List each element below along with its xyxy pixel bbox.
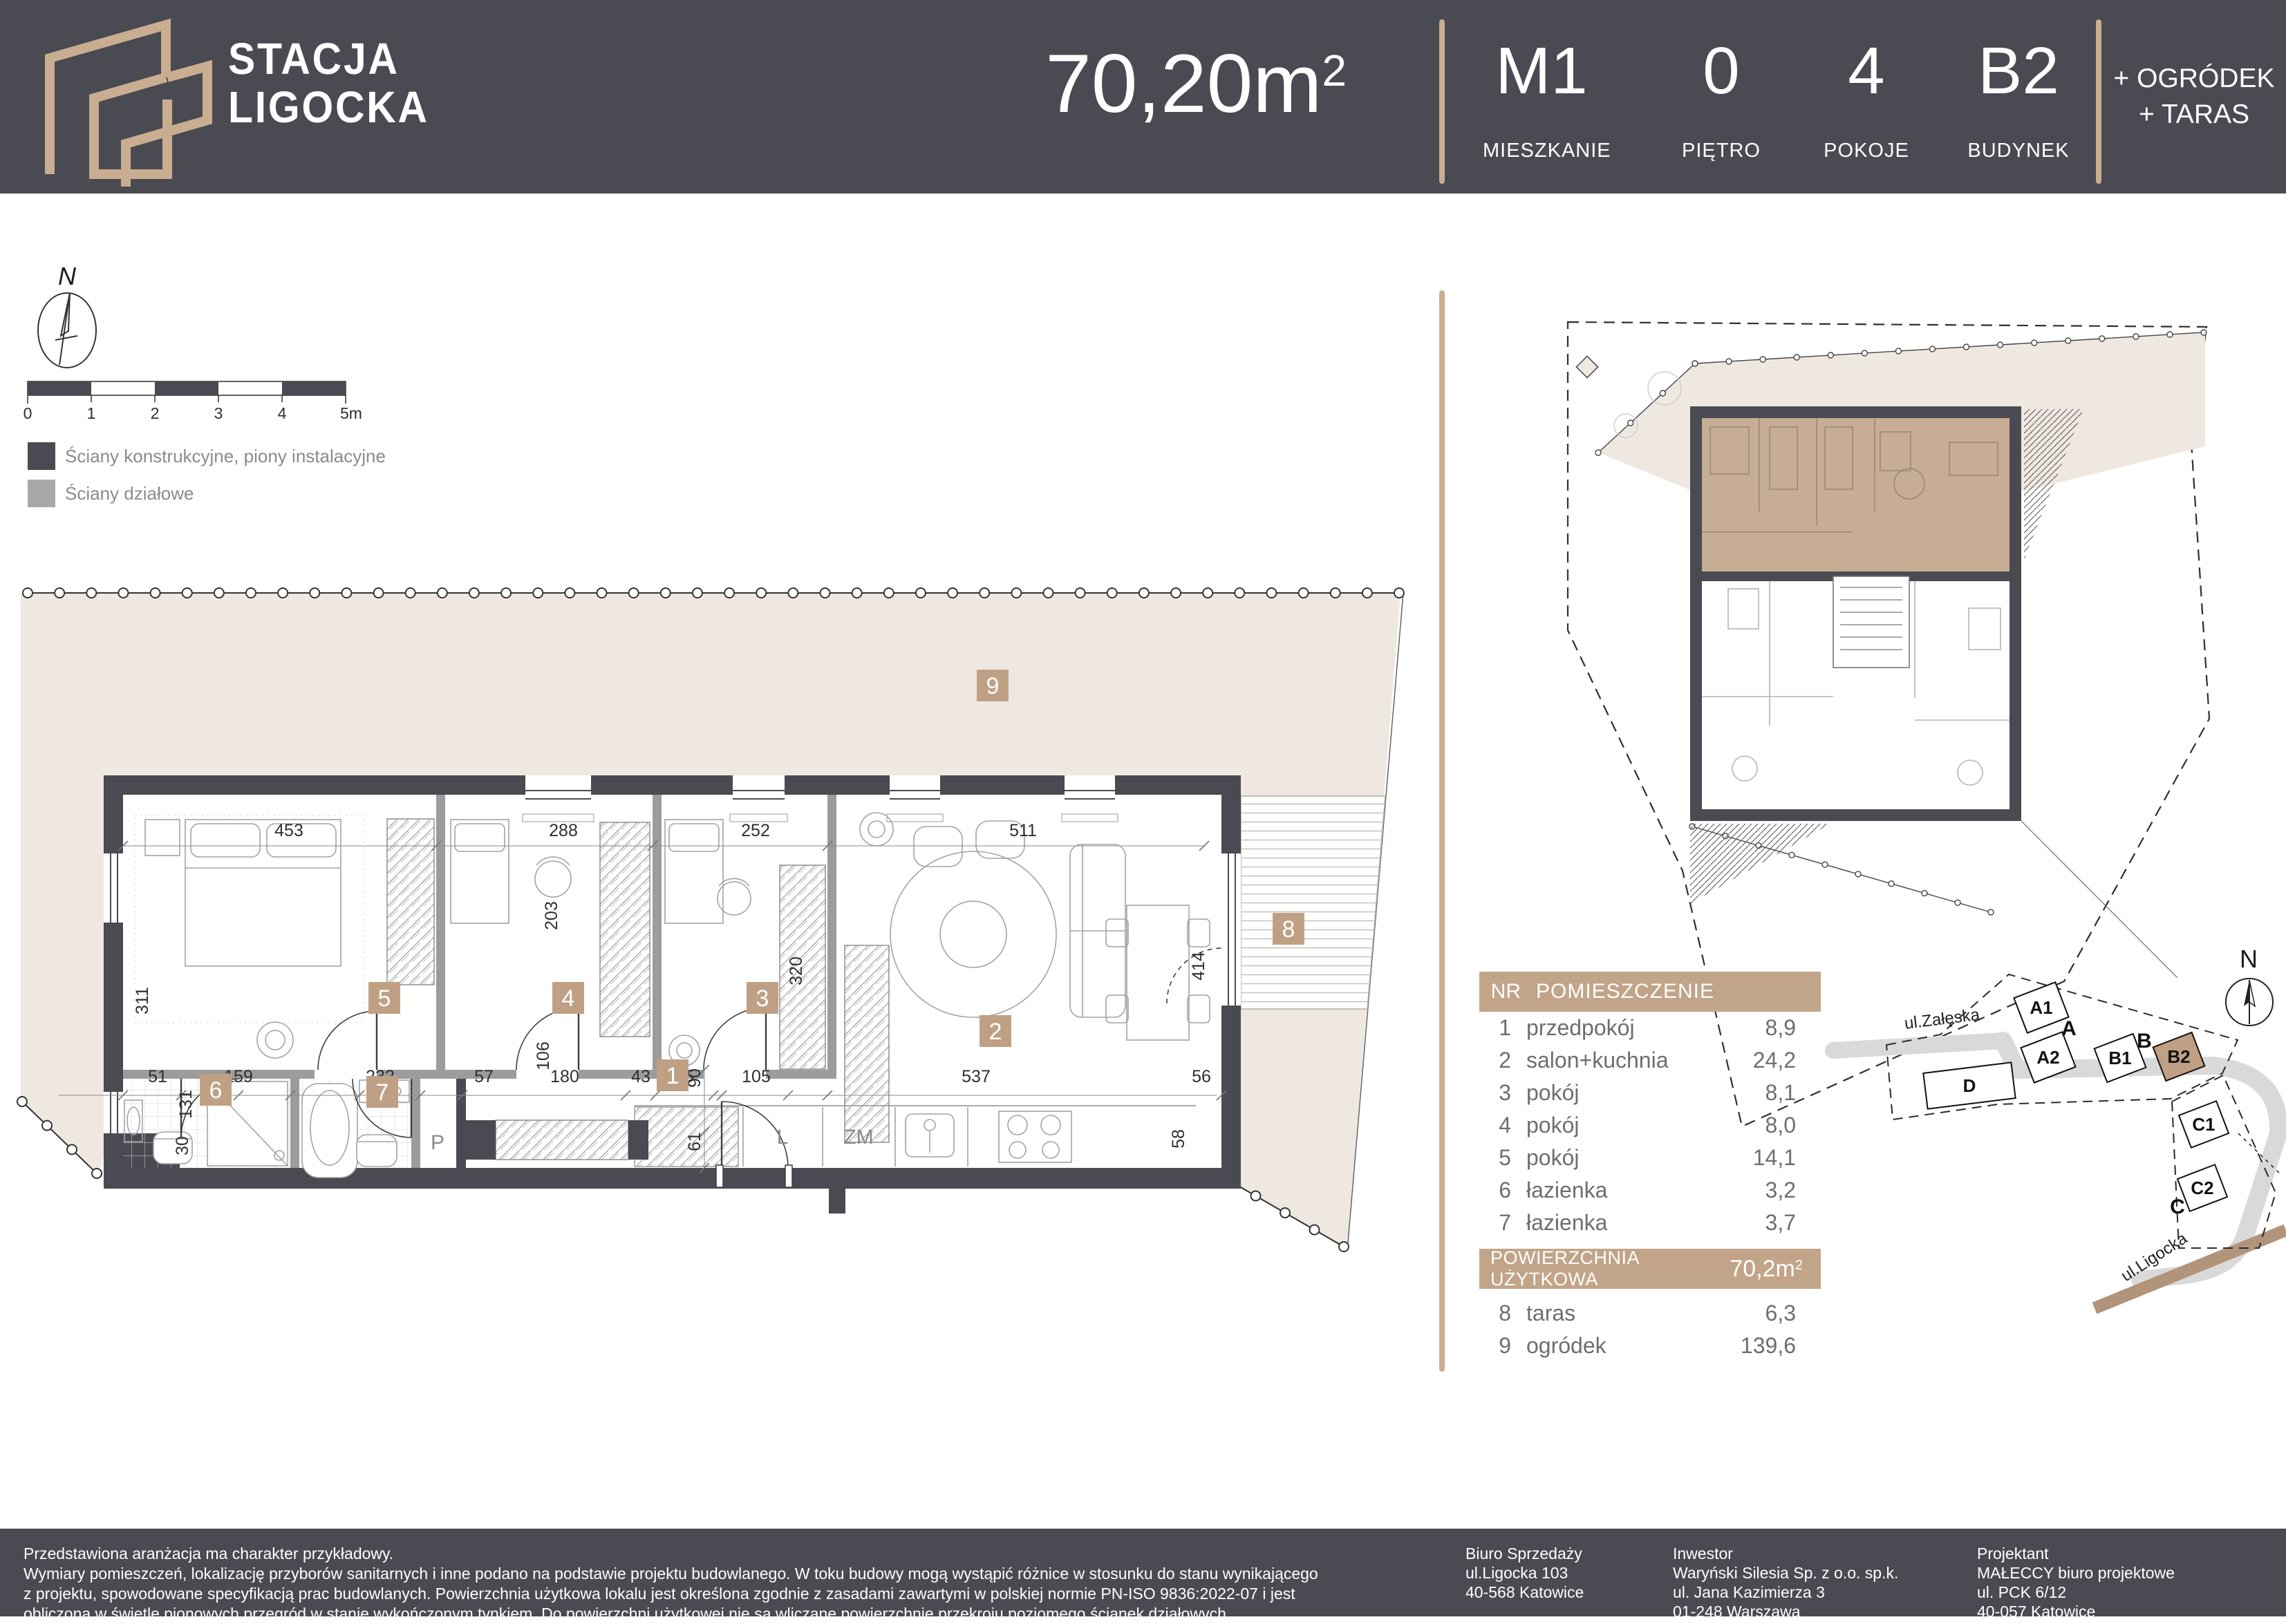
footer-disclaimer: Przedstawiona aranżacja ma charakter prz… — [24, 1544, 1318, 1624]
logo-line2: LIGOCKA — [228, 83, 429, 131]
fence-post — [17, 1097, 27, 1106]
table-header-nr: NR — [1489, 980, 1521, 1003]
scale-tick-4: 4 — [278, 404, 287, 422]
row-value: 3,2 — [1765, 1178, 1821, 1203]
site-building-label-A1: A1 — [2030, 997, 2052, 1018]
overview-fence-post — [1822, 862, 1828, 867]
fence-post — [23, 588, 32, 598]
scale-bar: 012345m — [24, 381, 362, 422]
footer-column-projektant: ProjektantMAŁECCY biuro projektoweul. PC… — [1977, 1544, 2175, 1621]
street-label: ul.Załęska — [1903, 1005, 1981, 1033]
header-extras: + OGRÓDEK + TARAS — [2103, 61, 2285, 133]
fence-post — [246, 588, 256, 598]
overview-fence-post — [2133, 334, 2139, 339]
extra-terrace: + TARAS — [2103, 97, 2285, 133]
site-building-C1: C1 — [2179, 1101, 2229, 1147]
overview-fence-post — [2201, 330, 2207, 335]
fence-post — [629, 588, 639, 598]
stat-value: B2 — [1960, 33, 2077, 109]
row-number: 8 — [1479, 1301, 1511, 1326]
area-sup: 2 — [1322, 46, 1347, 95]
row-name: łazienka — [1526, 1210, 1765, 1236]
row-number: 7 — [1479, 1210, 1511, 1236]
site-compass: N — [2226, 945, 2273, 1026]
stat-value: M1 — [1483, 33, 1600, 109]
stat-value: 0 — [1662, 33, 1780, 109]
fence-post — [92, 1169, 102, 1178]
row-name: salon+kuchnia — [1526, 1048, 1753, 1073]
fence-post — [565, 588, 574, 598]
fence-post — [820, 588, 830, 598]
fence-post — [151, 588, 160, 598]
stat-value: 4 — [1808, 33, 1925, 109]
fence-post — [980, 588, 989, 598]
usable-area-value: 70,2m2 — [1730, 1256, 1821, 1283]
stacja-ligocka-logo-icon — [36, 8, 223, 188]
fence-post — [86, 588, 96, 598]
header-stat-mieszkanie: M1MIESZKANIE — [1483, 0, 1600, 193]
overview-fence-post — [1760, 357, 1765, 362]
table-header-name: POMIESZCZENIE — [1536, 980, 1714, 1003]
overview-fence-post — [1828, 352, 1833, 358]
fence-post — [406, 588, 415, 598]
fence-post — [42, 1121, 52, 1131]
header-bar: STACJA LIGOCKA 70,20m2 M1MIESZKANIE0PIĘT… — [0, 0, 2286, 193]
fence-post — [1362, 588, 1372, 598]
footer-column-line: 40-568 Katowice — [1465, 1583, 1584, 1602]
site-building-label-D: D — [1963, 1075, 1976, 1096]
scale-tick-1: 1 — [87, 404, 96, 422]
row-value: 24,2 — [1753, 1048, 1821, 1073]
fence-post — [469, 588, 479, 598]
room-badge-number-9: 9 — [986, 673, 1000, 699]
disclaimer-line: Przedstawiona aranżacja ma charakter prz… — [24, 1544, 1318, 1564]
site-building-label-C1: C1 — [2192, 1114, 2215, 1135]
scale-tick-2: 2 — [151, 404, 160, 422]
dimension-label: 537 — [962, 1067, 991, 1086]
scale-tick-labels: 012345m — [24, 404, 362, 422]
overview-fence-post — [1855, 871, 1861, 877]
overview-fence-post — [1998, 342, 2003, 348]
fence-post — [916, 588, 926, 598]
row-value: 139,6 — [1741, 1333, 1821, 1359]
footer-column-title: Biuro Sprzedaży — [1465, 1544, 1584, 1563]
room-table: NR POMIESZCZENIE 1przedpokój8,92salon+ku… — [1479, 972, 1821, 1362]
fence-post — [884, 588, 894, 598]
fence-post — [55, 588, 64, 598]
room-badge-number-8: 8 — [1282, 916, 1295, 943]
fence-post — [67, 1144, 77, 1154]
table-row-6: 6łazienka3,2 — [1479, 1174, 1821, 1207]
row-name: ogródek — [1526, 1333, 1741, 1359]
fence-post — [118, 588, 128, 598]
fence-post — [1310, 1225, 1320, 1235]
legend-label-structural: Ściany konstrukcyjne, piony instalacyjne — [65, 446, 386, 466]
fence-post — [310, 588, 319, 598]
table-row-5: 5pokój14,1 — [1479, 1142, 1821, 1174]
apartment-area: 70,20m2 — [995, 36, 1396, 131]
fence-post — [214, 588, 224, 598]
room-badge-number-7: 7 — [376, 1079, 389, 1106]
stat-label: MIESZKANIE — [1483, 140, 1600, 162]
table-rows: 1przedpokój8,92salon+kuchnia24,23pokój8,… — [1479, 1012, 1821, 1239]
fence-post — [1139, 588, 1149, 598]
dimension-label: 30 — [173, 1136, 192, 1155]
table-row-1: 1przedpokój8,9 — [1479, 1012, 1821, 1044]
fence-post — [501, 588, 511, 598]
terrace — [1241, 796, 1385, 1009]
logo-text: STACJA LIGOCKA — [228, 35, 429, 131]
dimension-label: 252 — [741, 821, 770, 840]
legend-swatch-structural — [28, 442, 55, 470]
site-building-label-C2: C2 — [2191, 1178, 2213, 1198]
footer-bar: Przedstawiona aranżacja ma charakter prz… — [0, 1529, 2286, 1616]
row-name: pokój — [1526, 1145, 1753, 1171]
section-divider — [1439, 290, 1445, 1372]
stat-label: BUDYNEK — [1960, 140, 2077, 162]
footer-column-title: Projektant — [1977, 1544, 2175, 1563]
footer-column-line: ul.Ligocka 103 — [1465, 1563, 1584, 1583]
fixture-label-ZM: ZM — [843, 1126, 873, 1149]
footer-column-biuro-sprzedaży: Biuro Sprzedażyul.Ligocka 10340-568 Kato… — [1465, 1544, 1584, 1602]
footer-column-line: ul. Jana Kazimierza 3 — [1673, 1583, 1898, 1602]
scale-tick-3: 3 — [214, 404, 223, 422]
overview-fence-post — [1660, 390, 1665, 396]
room-badge-number-6: 6 — [209, 1077, 223, 1104]
table-row-4: 4pokój8,0 — [1479, 1109, 1821, 1142]
footer-column-inwestor: InwestorWaryński Silesia Sp. z o.o. sp.k… — [1673, 1544, 1898, 1621]
row-value: 8,9 — [1765, 1015, 1821, 1041]
dimension-label: 414 — [1189, 952, 1208, 981]
fence-post — [1280, 1208, 1290, 1218]
dimension-label: 511 — [1009, 821, 1037, 840]
dimension-label: 311 — [133, 987, 152, 1014]
north-letter: N — [58, 262, 77, 290]
header-stat-pokoje: 4POKOJE — [1808, 0, 1925, 193]
table-outdoor-rows: 8taras6,39ogródek139,6 — [1479, 1297, 1821, 1362]
overview-fence-post — [2167, 332, 2173, 337]
footer-column-line: 01-248 Warszawa — [1673, 1602, 1898, 1621]
dimension-label: 131 — [176, 1090, 196, 1119]
room-badge-number-1: 1 — [666, 1063, 680, 1089]
table-row-9: 9ogródek139,6 — [1479, 1330, 1821, 1362]
site-building-label-A2: A2 — [2036, 1047, 2059, 1068]
overview-fence-post — [1955, 900, 1960, 905]
fixture-label-P: P — [431, 1131, 444, 1154]
stat-label: PIĘTRO — [1662, 140, 1780, 162]
stat-label: POKOJE — [1808, 140, 1925, 162]
overview-fence-post — [2065, 338, 2071, 343]
overview-fence-post — [2032, 340, 2037, 346]
table-header-bar: NR POMIESZCZENIE — [1479, 972, 1821, 1012]
dimension-label: 105 — [742, 1067, 771, 1086]
usable-area-label: POWIERZCHNIA UŻYTKOWA — [1490, 1247, 1730, 1290]
overview-fence-post — [1895, 348, 1901, 354]
fence-post — [788, 588, 798, 598]
overview-fence-post — [1789, 852, 1795, 858]
fence-post — [693, 588, 702, 598]
fence-post — [756, 588, 766, 598]
dimension-label: 61 — [685, 1132, 704, 1151]
row-value: 3,7 — [1765, 1210, 1821, 1236]
fence-post — [852, 588, 862, 598]
fence-post — [1235, 588, 1244, 598]
north-compass: N — [38, 262, 96, 368]
row-number: 4 — [1479, 1113, 1511, 1138]
site-building-label-B2: B2 — [2167, 1046, 2190, 1067]
row-name: pokój — [1526, 1080, 1765, 1106]
dimension-label: 453 — [274, 821, 303, 840]
fence-post — [1107, 588, 1117, 598]
fence-post — [374, 588, 384, 598]
fence-post — [1339, 1242, 1349, 1252]
row-value: 6,3 — [1765, 1301, 1821, 1326]
site-building-D: D — [1923, 1062, 2015, 1108]
overview-fence-post — [1726, 359, 1732, 364]
footer-column-line: MAŁECCY biuro projektowe — [1977, 1563, 2175, 1583]
site-zone-B: B — [2137, 1030, 2152, 1052]
floorplan-artwork: N 012345m Ściany konstrukcyjne, piony in… — [0, 0, 2286, 1616]
fence-post — [1266, 588, 1276, 598]
row-number: 1 — [1479, 1015, 1511, 1041]
site-north-letter: N — [2240, 945, 2258, 973]
row-name: pokój — [1526, 1113, 1765, 1138]
disclaimer-line: z projektu, spowodowane specyfikacją pra… — [24, 1584, 1318, 1604]
overview-fence-post — [1929, 346, 1935, 352]
fence-post — [533, 588, 543, 598]
table-row-8: 8taras6,3 — [1479, 1297, 1821, 1330]
row-number: 6 — [1479, 1178, 1511, 1203]
dimension-label: 106 — [534, 1041, 553, 1070]
row-value: 8,1 — [1765, 1080, 1821, 1106]
overview-fence-post — [1889, 881, 1894, 887]
footer-column-line: 40-057 Katowice — [1977, 1602, 2175, 1621]
room-badge-number-3: 3 — [756, 985, 769, 1012]
row-number: 3 — [1479, 1080, 1511, 1106]
fence-post — [1203, 588, 1212, 598]
fence-post — [661, 588, 671, 598]
highlighted-apartment-m1 — [1702, 418, 2009, 572]
row-value: 8,0 — [1765, 1113, 1821, 1138]
fence-post — [1251, 1191, 1261, 1201]
footer-column-line: Waryński Silesia Sp. z o.o. sp.k. — [1673, 1563, 1898, 1583]
dimension-label: 180 — [550, 1067, 579, 1086]
overview-fence-post — [1862, 350, 1867, 356]
row-number: 9 — [1479, 1333, 1511, 1359]
row-number: 5 — [1479, 1145, 1511, 1171]
fence-post — [1011, 588, 1021, 598]
dimension-label: 51 — [148, 1067, 167, 1086]
fence-post — [948, 588, 957, 598]
table-row-3: 3pokój8,1 — [1479, 1077, 1821, 1109]
overview-fence-post — [1628, 420, 1633, 426]
overview-fence-post — [1595, 450, 1601, 455]
room-badge-number-4: 4 — [562, 985, 575, 1012]
logo-line1: STACJA — [228, 35, 429, 83]
header-stat-piętro: 0PIĘTRO — [1662, 0, 1780, 193]
overview-fence-post — [1922, 890, 1927, 896]
legend-label-partition: Ściany działowe — [65, 483, 194, 504]
dimension-label: 43 — [631, 1067, 650, 1086]
footer-column-title: Inwestor — [1673, 1544, 1898, 1563]
fence-post — [1394, 588, 1404, 598]
fence-post — [1076, 588, 1085, 598]
row-value: 14,1 — [1753, 1145, 1821, 1171]
disclaimer-line: obliczona w świetle pionowych przegród w… — [24, 1604, 1318, 1624]
extra-garden: + OGRÓDEK — [2103, 61, 2285, 97]
legend: Ściany konstrukcyjne, piony instalacyjne… — [28, 442, 386, 507]
fence-post — [1299, 588, 1309, 598]
fence-post — [438, 588, 447, 598]
scale-tick-5: 5m — [340, 404, 362, 422]
fence-post — [1043, 588, 1053, 598]
area-value: 70,20m — [1045, 37, 1322, 130]
header-divider-left — [1439, 19, 1445, 184]
site-zone-C: C — [2170, 1196, 2185, 1218]
usable-area-bar: POWIERZCHNIA UŻYTKOWA 70,2m2 — [1479, 1249, 1821, 1289]
flat-card-page: N 012345m Ściany konstrukcyjne, piony in… — [0, 0, 2286, 1616]
site-map: A1A2B1B2C1C2D ABC ul.Załęskaul.Ligocka N — [1833, 945, 2286, 1308]
site-building-label-B1: B1 — [2108, 1048, 2131, 1068]
row-name: przedpokój — [1526, 1015, 1765, 1041]
fence-post — [341, 588, 351, 598]
header-stat-budynek: B2BUDYNEK — [1960, 0, 2077, 193]
row-name: łazienka — [1526, 1178, 1765, 1203]
fence-post — [278, 588, 288, 598]
dimension-label: 288 — [549, 821, 578, 840]
dimension-label: 203 — [542, 901, 561, 930]
scale-tick-0: 0 — [24, 404, 32, 422]
table-row-2: 2salon+kuchnia24,2 — [1479, 1044, 1821, 1077]
overview-fence-post — [2099, 336, 2105, 341]
table-row-7: 7łazienka3,7 — [1479, 1207, 1821, 1239]
footer-column-line: ul. PCK 6/12 — [1977, 1583, 2175, 1602]
dimension-label: 58 — [1169, 1129, 1188, 1149]
dimension-label: 56 — [1192, 1067, 1211, 1086]
fence-post — [1331, 588, 1340, 598]
fence-post — [1171, 588, 1181, 598]
dimension-label: 57 — [474, 1067, 494, 1086]
dimension-label: 320 — [787, 956, 806, 985]
overview-fence-post — [1964, 344, 1969, 350]
fence-post — [182, 588, 192, 598]
disclaimer-line: Wymiary pomieszczeń, lokalizację przybor… — [24, 1564, 1318, 1584]
fence-post — [597, 588, 607, 598]
site-zone-A: A — [2061, 1017, 2077, 1040]
overview-fence-post — [1794, 355, 1799, 360]
legend-swatch-partition — [28, 480, 55, 507]
overview-fence-post — [1988, 909, 1994, 915]
row-number: 2 — [1479, 1048, 1511, 1073]
row-name: taras — [1526, 1301, 1765, 1326]
furniture — [124, 813, 1210, 1178]
room-badge-number-5: 5 — [378, 985, 391, 1012]
fixture-label-L: L — [777, 1126, 789, 1149]
room-badge-number-2: 2 — [989, 1019, 1002, 1045]
overview-fence-post — [1692, 361, 1698, 366]
fence-post — [724, 588, 734, 598]
header-divider-right — [2096, 19, 2101, 184]
